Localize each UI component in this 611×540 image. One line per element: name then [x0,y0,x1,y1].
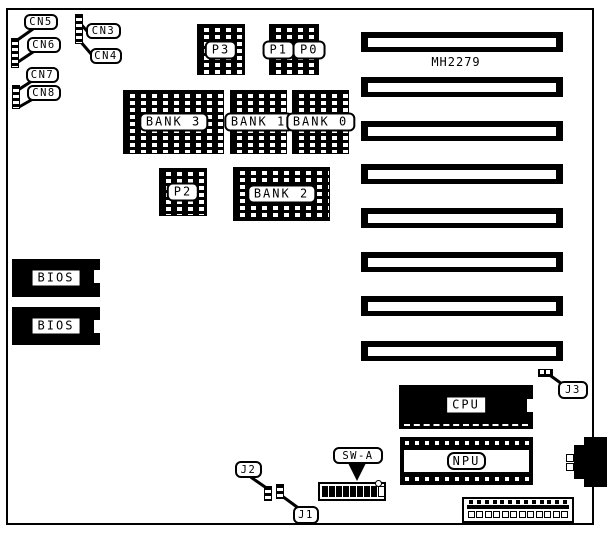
power-pin [522,500,530,509]
power-connector [462,497,574,523]
power-pad [502,511,509,518]
connector-j2 [264,486,272,501]
memory-bank-1: BANK 1 [230,90,287,154]
keyboard-connector-step [574,445,585,479]
bios-chip-bottom: BIOS [12,307,100,345]
power-pad [527,511,534,518]
npu-pin-strip-top [402,439,531,447]
callout-j2: J2 [235,461,262,478]
npu-pin-strip-bottom [402,475,531,483]
bank3-label: BANK 3 [139,113,208,132]
expansion-slot-6 [361,252,563,272]
bios-top-label: BIOS [33,271,80,286]
power-connector-pads [464,511,572,519]
chip-p2: P2 [159,168,207,216]
cpu-pin-row [404,424,528,426]
chip-p1-label: P1 [263,40,295,59]
power-pin [475,500,483,509]
dip-segment-1 [322,486,328,497]
power-connector-pins [464,499,572,509]
chip-p3-label: P3 [205,40,237,59]
power-pin [538,500,546,509]
callout-cn7: CN7 [26,67,59,83]
power-pin [561,500,569,509]
memory-bank-0: BANK 0 [292,90,349,154]
bios-chip-top: BIOS [12,259,100,297]
callout-cn6: CN6 [27,37,61,53]
power-pin [545,500,553,509]
keyboard-connector-pad-1 [566,454,574,462]
bank1-label: BANK 1 [224,113,293,132]
power-pin [467,500,475,509]
callout-cn8: CN8 [27,85,61,101]
bios-top-notch [94,270,100,283]
power-pin [491,500,499,509]
memory-bank-3: BANK 3 [123,90,224,154]
chip-p1-p0: P1P0 [269,24,319,75]
expansion-slot-1 [361,32,563,52]
connector-cn7-cn8 [12,85,20,109]
power-pad [519,511,526,518]
dip-segment-4 [343,486,349,497]
power-pad [544,511,551,518]
keyboard-connector-body [584,437,607,487]
chip-p0-label: P0 [293,40,325,59]
power-pad [485,511,492,518]
power-pad [468,511,475,518]
power-pad [476,511,483,518]
power-pin [506,500,514,509]
cpu-notch [527,399,533,412]
bank2-label: BANK 2 [247,185,316,204]
connector-cn3-cn4 [75,14,83,44]
npu-socket: NPU [400,437,533,485]
callout-j3: J3 [558,381,588,399]
keyboard-connector-pad-2 [566,463,574,471]
power-pin [498,500,506,509]
power-pad [561,511,568,518]
callout-cn3: CN3 [86,23,121,39]
memory-bank-2: BANK 2 [233,167,330,221]
chip-p2-label: P2 [167,183,199,202]
npu-label: NPU [447,452,487,470]
power-pad [536,511,543,518]
expansion-slot-8 [361,341,563,361]
bank0-label: BANK 0 [286,113,355,132]
dip-segment-9 [378,486,385,497]
power-pad [510,511,517,518]
power-pin [530,500,538,509]
connector-cn5-cn6 [11,38,19,68]
dip-segment-7 [364,486,370,497]
chip-p3: P3 [197,24,245,75]
expansion-slot-2 [361,77,563,97]
expansion-slot-5 [361,208,563,228]
dip-segment-3 [336,486,342,497]
connector-j1 [276,484,284,499]
callout-cn5: CN5 [24,14,58,30]
cpu-chip: CPU [399,385,533,429]
power-pad [553,511,560,518]
bios-bottom-notch [94,320,100,333]
power-pin [483,500,491,509]
motherboard-diagram: MH2279 P3 P1P0 BANK 3 BANK 1 BANK 0 P2 B… [0,0,611,540]
dip-segment-6 [357,486,363,497]
dip-segment-2 [329,486,335,497]
expansion-slot-7 [361,296,563,316]
part-number-label: MH2279 [412,55,500,69]
power-pin [514,500,522,509]
power-pin [553,500,561,509]
connector-j3 [538,369,553,377]
callout-j1: J1 [293,506,319,524]
dip-switch-sw-a [318,482,386,501]
dip-segment-5 [350,486,356,497]
expansion-slot-3 [361,121,563,141]
callout-sw-a: SW-A [333,447,383,464]
expansion-slot-4 [361,164,563,184]
power-pad [493,511,500,518]
bios-bottom-label: BIOS [33,319,80,334]
cpu-label: CPU [447,397,485,412]
dip-segment-8 [371,486,377,497]
dip-switch-index-dot [375,480,382,487]
callout-cn4: CN4 [90,48,122,64]
